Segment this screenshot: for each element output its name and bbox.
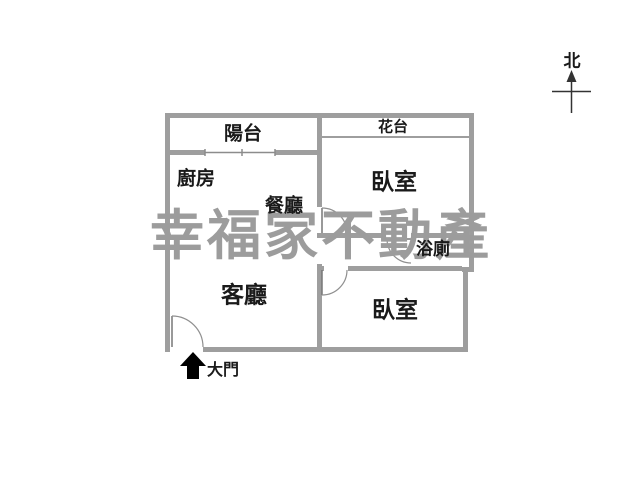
room-labels: 陽台 花台 廚房 餐廳 臥室 浴廁 客廳 臥室 大門 北 (0, 0, 640, 480)
room-label-bedroom-top: 臥室 (371, 172, 417, 195)
room-label-dining-room: 餐廳 (265, 197, 303, 216)
room-label-balcony: 陽台 (224, 125, 262, 144)
room-label-bathroom: 浴廁 (416, 242, 450, 259)
floor-plan-stage: 幸福家不動產 陽台 花台 廚房 餐廳 臥室 浴廁 客廳 臥室 大門 北 (0, 0, 640, 480)
room-label-bedroom-bottom: 臥室 (372, 300, 418, 323)
room-label-kitchen: 廚房 (177, 170, 215, 189)
main-entrance-label: 大門 (207, 362, 239, 378)
room-label-flower-terrace: 花台 (378, 120, 408, 135)
north-label: 北 (564, 54, 581, 71)
room-label-living-room: 客廳 (221, 285, 267, 308)
